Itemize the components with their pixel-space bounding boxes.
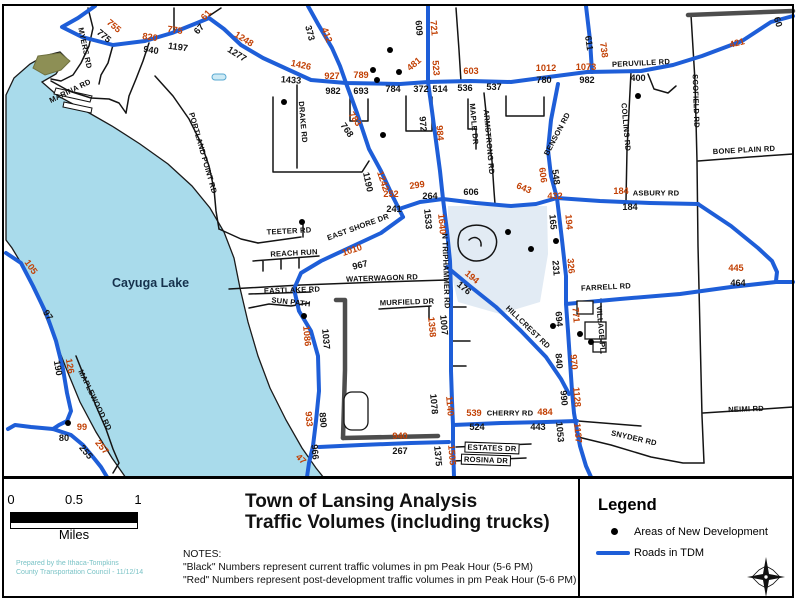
post-development-volume: 1358 (426, 316, 438, 337)
road-label: FARRELL RD (581, 281, 631, 293)
post-development-volume: 1426 (290, 58, 312, 72)
current-volume: 1277 (226, 44, 249, 63)
road-label: PERUVILLE RD (612, 57, 670, 69)
road-label: COLLINS RD (619, 102, 632, 151)
road-label: WATERWAGON RD (346, 272, 418, 284)
road-label: MURFIELD DR (380, 297, 435, 308)
traffic-map-page: Cayuga Lake MYERS RDMARINA RDPORTLAND PO… (0, 0, 800, 608)
new-development-dot (553, 238, 559, 244)
new-development-dot (635, 93, 641, 99)
page-title: Town of Lansing Analysis Traffic Volumes… (245, 491, 550, 533)
current-volume: 982 (325, 86, 340, 96)
post-development-volume: 1137 (572, 423, 584, 444)
current-volume: 165 (547, 214, 558, 230)
post-development-volume: 184 (613, 186, 628, 196)
new-development-dot (281, 99, 287, 105)
title-line-1: Town of Lansing Analysis (245, 491, 550, 512)
road-label: MYERS RD (76, 27, 93, 70)
road-label: MAPLE DR (468, 103, 481, 145)
current-volume: 231 (550, 260, 561, 276)
current-volume: 966 (309, 444, 320, 460)
road-label: EAST SHORE DR (326, 212, 390, 243)
post-development-volume: 257 (93, 438, 111, 456)
current-volume: 611 (583, 35, 595, 51)
post-development-volume: 1086 (301, 325, 313, 346)
post-development-volume: 771 (570, 307, 581, 323)
notes-block: NOTES: "Black" Numbers represent current… (183, 549, 576, 587)
post-development-volume: 1012 (536, 63, 556, 73)
current-volume: 1053 (554, 421, 566, 442)
current-volume: 548 (550, 169, 562, 186)
development-dot-icon (611, 528, 618, 535)
legend-box-border (578, 479, 580, 598)
post-development-volume: 252 (383, 189, 398, 199)
current-volume: 609 (413, 20, 424, 36)
legend-heading: Legend (598, 496, 657, 515)
current-volume: 537 (486, 82, 501, 92)
post-development-volume: 445 (728, 263, 743, 273)
post-development-volume: 105 (23, 258, 40, 276)
current-volume: 1007 (438, 314, 450, 335)
road-label: ASBURY RD (633, 189, 680, 198)
road-label: ROSINA DR (461, 454, 511, 467)
post-development-volume: 412 (320, 26, 335, 44)
current-volume: 780 (536, 75, 551, 85)
post-development-volume: 789 (353, 70, 368, 80)
current-volume: 967 (351, 258, 368, 271)
current-volume: 536 (457, 83, 472, 93)
new-development-dot (588, 339, 594, 345)
post-development-volume: 484 (537, 407, 552, 417)
scale-tick-1: 1 (134, 492, 141, 507)
current-volume: 693 (353, 86, 368, 96)
notes-heading: NOTES: (183, 549, 576, 562)
road-label: SNYDER RD (610, 428, 657, 447)
map-labels-layer: Cayuga Lake MYERS RDMARINA RDPORTLAND PO… (0, 0, 800, 478)
road-label: N TRIPHAMMER RD (440, 233, 452, 308)
new-development-dot (528, 246, 534, 252)
post-development-volume: 927 (324, 71, 339, 81)
road-label: DRAKE RD (297, 101, 310, 143)
post-development-volume: 933 (303, 411, 314, 427)
post-development-volume: 432 (547, 191, 562, 201)
post-development-volume: 820 (142, 31, 159, 43)
notes-line-black: "Black" Numbers represent current traffi… (183, 562, 576, 575)
post-development-volume: 47 (294, 452, 308, 466)
post-development-volume: 643 (515, 180, 533, 195)
current-volume: 1190 (361, 171, 375, 193)
scale-unit-label: Miles (59, 527, 89, 542)
new-development-dot (374, 77, 380, 83)
tdm-road-line-icon (596, 551, 630, 555)
road-label: BONE PLAIN RD (713, 144, 776, 156)
scale-tick-05: 0.5 (65, 492, 83, 507)
current-volume: 524 (469, 422, 484, 432)
current-volume: 60 (772, 16, 785, 29)
current-volume: 784 (385, 84, 400, 94)
post-development-volume: 940 (392, 431, 407, 441)
new-development-dot (299, 219, 305, 225)
scale-bar (10, 512, 138, 522)
current-volume: 1375 (432, 445, 444, 466)
post-development-volume: 721 (428, 20, 439, 36)
current-volume: 982 (579, 75, 594, 85)
post-development-volume: 126 (64, 358, 77, 375)
new-development-dot (505, 229, 511, 235)
post-development-volume: 523 (430, 60, 441, 76)
new-development-dot (550, 323, 556, 329)
current-volume: 373 (303, 24, 317, 41)
new-development-dot (301, 313, 307, 319)
post-development-volume: 539 (466, 408, 481, 418)
scale-tick-0: 0 (7, 492, 14, 507)
post-development-volume: 421 (728, 36, 745, 50)
current-volume: 372 (413, 84, 428, 94)
current-volume: 940 (143, 44, 160, 56)
title-line-2: Traffic Volumes (including trucks) (245, 512, 550, 533)
current-volume: 606 (463, 187, 478, 197)
credit-line: Prepared by the Ithaca-Tompkins (16, 559, 143, 568)
map-footer-divider (2, 476, 794, 479)
current-volume: 1533 (422, 208, 434, 229)
current-volume: 264 (422, 191, 437, 201)
new-development-dot (65, 420, 71, 426)
current-volume: 990 (558, 390, 569, 406)
credit-line: County Transportation Council - 11/12/14 (16, 568, 143, 577)
post-development-volume: 1640 (436, 213, 448, 234)
current-volume: 67 (192, 22, 206, 36)
post-development-volume: 1010 (341, 242, 364, 258)
post-development-volume: 99 (77, 422, 87, 432)
post-development-volume: 481 (405, 55, 423, 73)
post-development-volume: 970 (568, 354, 579, 370)
new-development-dot (370, 67, 376, 73)
current-volume: 1037 (320, 328, 332, 349)
current-volume: 255 (77, 443, 95, 461)
new-development-dot (387, 47, 393, 53)
current-volume: 1197 (167, 41, 188, 54)
new-development-dot (380, 132, 386, 138)
road-label: PORTLAND POINT RD (187, 111, 219, 194)
current-volume: 1078 (428, 393, 440, 414)
post-development-volume: 194 (563, 214, 574, 230)
post-development-volume: 1140 (444, 396, 456, 417)
current-volume: 97 (41, 308, 55, 322)
current-volume: 241 (386, 204, 401, 214)
road-label: BENSON RD (542, 111, 572, 157)
road-label: REACH RUN (270, 247, 318, 258)
post-development-volume: 1505 (446, 444, 458, 465)
post-development-volume: 1128 (571, 387, 583, 408)
notes-line-red: "Red" Numbers represent post-development… (183, 575, 576, 588)
road-label: MARINA RD (48, 77, 92, 105)
post-development-volume: 61 (199, 8, 213, 22)
current-volume: 464 (730, 278, 745, 288)
current-volume: 443 (530, 422, 545, 432)
post-development-volume: 299 (409, 179, 426, 191)
map-canvas: Cayuga Lake MYERS RDMARINA RDPORTLAND PO… (0, 0, 800, 478)
compass-rose-icon (746, 556, 786, 598)
current-volume: 190 (52, 360, 65, 377)
lake-label: Cayuga Lake (112, 276, 189, 290)
road-label: ESTATES DR (464, 442, 519, 455)
current-volume: 184 (622, 202, 637, 212)
legend-item-tdm-roads: Roads in TDM (634, 547, 704, 559)
road-label: SCOFIELD RD (691, 74, 702, 128)
credit-text: Prepared by the Ithaca-Tompkins County T… (16, 559, 143, 577)
post-development-volume: 984 (434, 125, 445, 141)
road-label: SUN PATH (271, 295, 311, 308)
road-label: ARMSTRONG RD (482, 109, 497, 175)
post-development-volume: 606 (537, 167, 549, 184)
current-volume: 972 (417, 116, 428, 132)
current-volume: 400 (630, 73, 645, 83)
road-label: TEETER RD (266, 225, 311, 236)
road-label: HILLCREST RD (504, 304, 552, 351)
road-label: CHERRY RD (487, 409, 534, 418)
current-volume: 890 (317, 412, 328, 428)
road-label: EASTLAKE RD (264, 285, 320, 296)
road-label: VILLAGE PL (594, 305, 607, 352)
post-development-volume: 326 (565, 258, 576, 274)
post-development-volume: 738 (598, 42, 610, 59)
road-label: NEIMI RD (728, 404, 764, 414)
current-volume: 267 (392, 446, 407, 456)
new-development-dot (396, 69, 402, 75)
post-development-volume: 1248 (233, 29, 256, 48)
current-volume: 514 (432, 84, 447, 94)
legend-item-development: Areas of New Development (634, 526, 768, 538)
post-development-volume: 1073 (576, 62, 596, 72)
current-volume: 840 (553, 353, 564, 369)
current-volume: 80 (59, 433, 69, 443)
post-development-volume: 603 (463, 66, 478, 76)
post-development-volume: 775 (167, 24, 184, 36)
current-volume: 1433 (280, 74, 301, 85)
new-development-dot (577, 331, 583, 337)
